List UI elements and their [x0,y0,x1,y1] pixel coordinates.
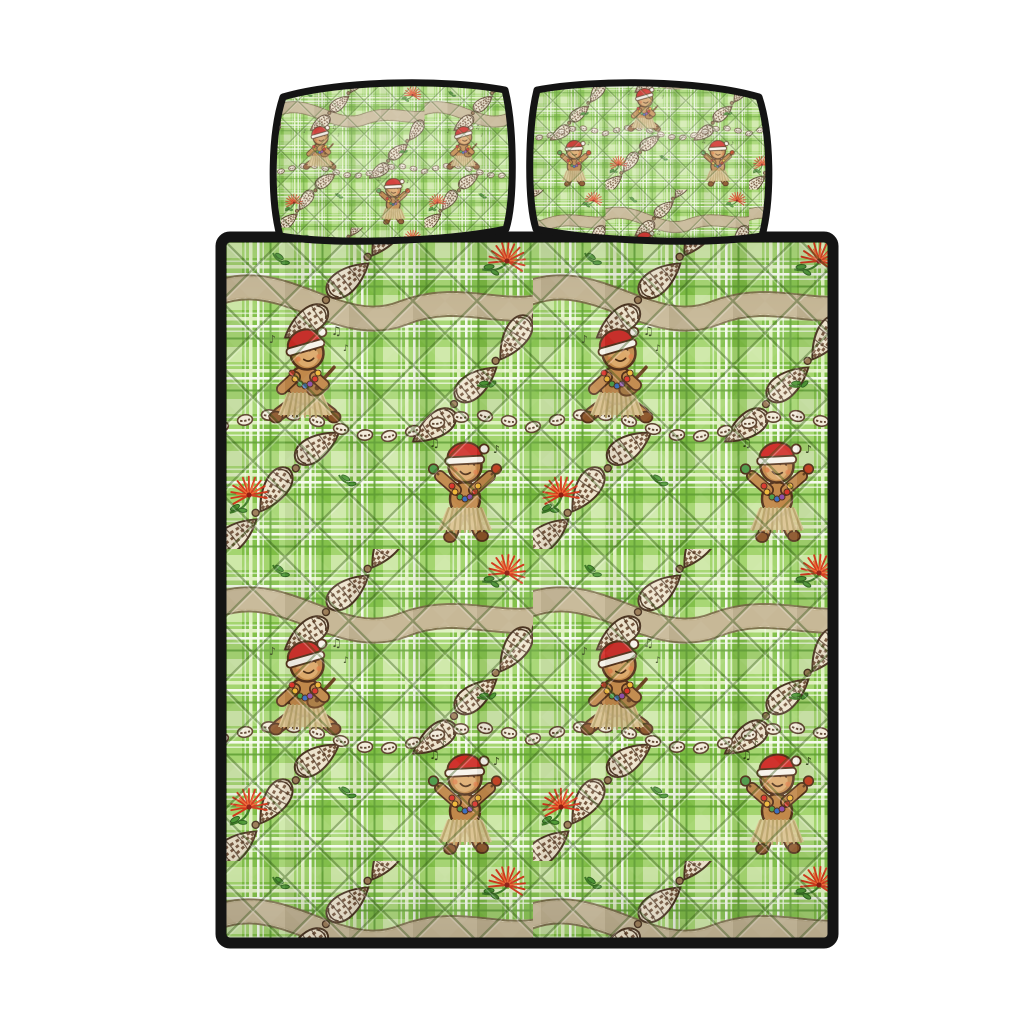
product-mockup-svg: ♪ ♫ ♪ ♫ ♪ ♪ [0,0,1024,1024]
pillow-left-sheen [273,83,512,241]
bedding-set-product-image: ♪ ♫ ♪ ♫ ♪ ♪ [0,0,1024,1024]
quilt [221,237,833,943]
quilt-shading [221,237,833,943]
pillow-sham-left [273,83,512,241]
pillow-sham-right [530,83,769,241]
pillow-right-sheen [530,83,769,241]
